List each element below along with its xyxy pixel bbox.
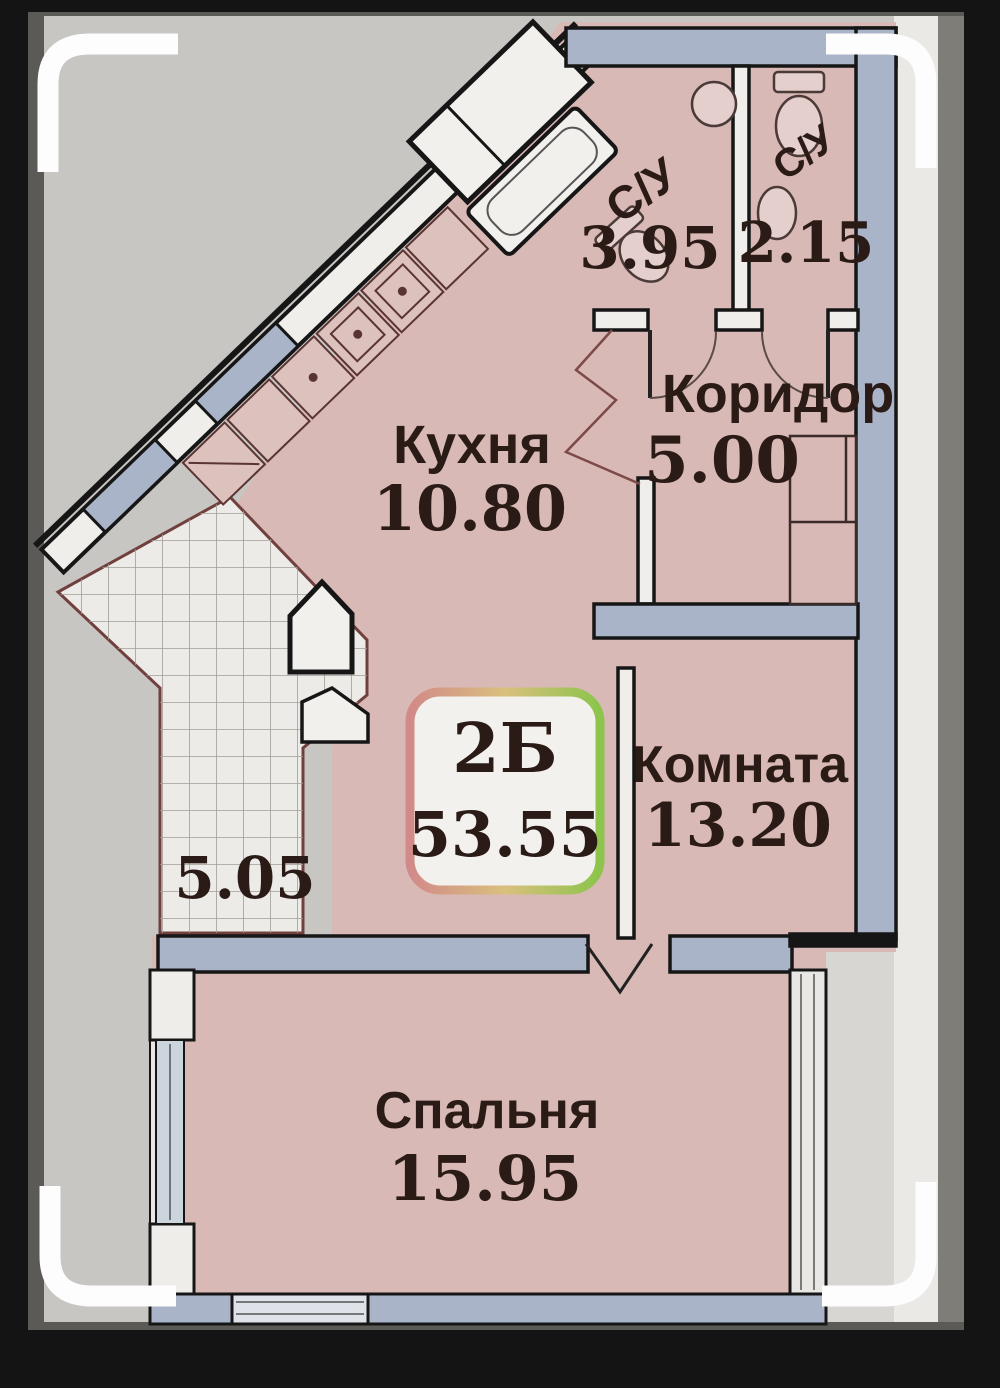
bathroom-large-area: 3.95 [579,214,720,282]
unit-info-badge: 2Б 53.55 [408,692,602,890]
bedroom-name: Спальня [375,1082,600,1140]
bedroom-window-bottom-icon [232,1294,368,1324]
balcony-area: 5.05 [174,844,315,912]
unit-type-label: 2Б [452,709,557,789]
washbasin-icon [692,82,736,126]
bedroom-area: 15.95 [388,1142,582,1215]
bathroom-small-area: 2.15 [738,210,874,276]
bedroom-right-wall [790,970,826,1294]
wall-cap-right [790,934,896,946]
wall-bathrooms-bottom [594,310,648,330]
toilet-tank-icon [774,72,824,92]
wall-bathrooms-bottom [828,310,858,330]
right-light-strip [894,16,938,1322]
wall-bedroom-top [670,936,792,972]
unit-total-area: 53.55 [408,798,602,871]
bedroom-bottom-wall [150,1294,826,1324]
kitchen-name: Кухня [393,415,551,475]
wall-livingroom-top [594,604,858,638]
corridor-name: Коридор [662,364,894,424]
corridor-area: 5.00 [644,423,800,498]
wall-bedroom-top [158,936,588,972]
wall-livingroom-left [618,668,634,938]
floor-plan-drawing: 2Б 53.55 Кухня 10.80 Коридор 5.00 С/У 3.… [0,0,1000,1388]
right-shadow-strip [938,16,964,1322]
floor-plan-page: 2Б 53.55 Кухня 10.80 Коридор 5.00 С/У 3.… [0,0,1000,1388]
wall-bathrooms-bottom [716,310,762,330]
outside-area-right [826,952,894,1322]
wall-right [856,28,896,940]
living-room-area: 13.20 [644,791,832,861]
living-room-name: Комната [632,736,849,794]
kitchen-area: 10.80 [373,472,567,545]
